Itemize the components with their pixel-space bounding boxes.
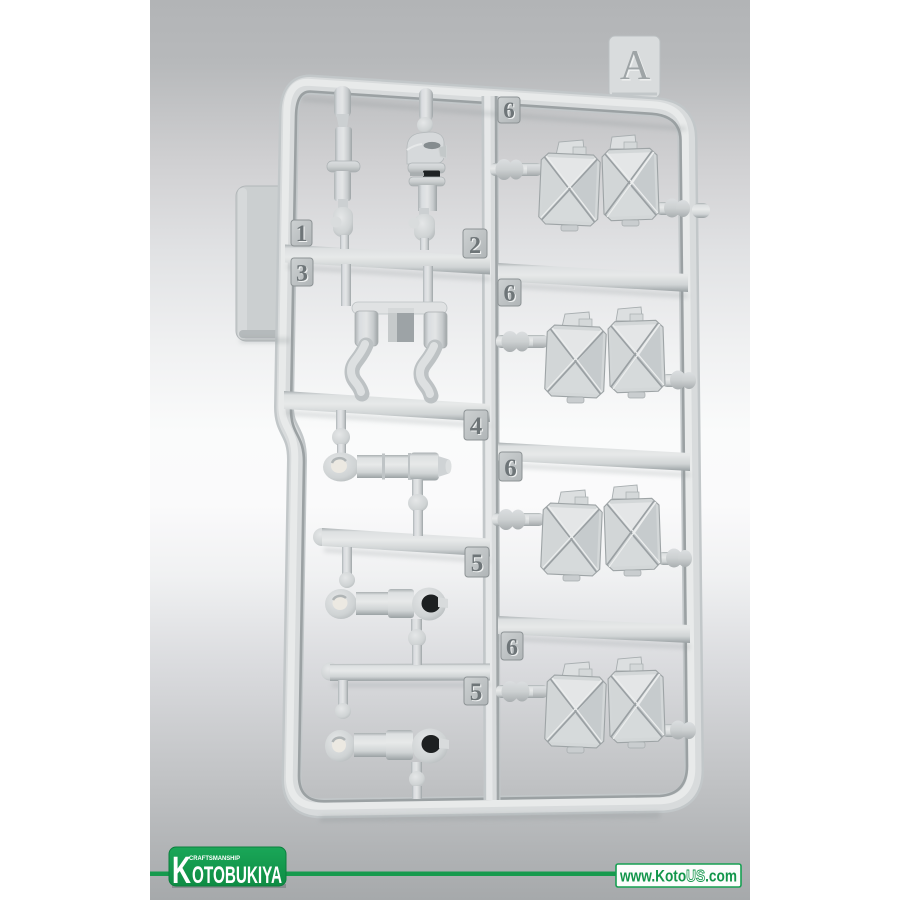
svg-text:3: 3 [296, 261, 308, 287]
svg-text:OTOBUKIYA: OTOBUKIYA [192, 862, 282, 889]
svg-text:6: 6 [506, 635, 518, 661]
svg-text:www.KotoUS.com: www.KotoUS.com [619, 867, 737, 886]
svg-text:6: 6 [504, 455, 517, 482]
svg-text:5: 5 [471, 550, 484, 577]
svg-text:5: 5 [470, 679, 483, 706]
svg-text:A: A [620, 43, 651, 89]
svg-text:6: 6 [504, 281, 516, 307]
svg-text:1: 1 [296, 221, 308, 246]
svg-text:2: 2 [469, 233, 481, 259]
svg-text:4: 4 [470, 413, 483, 440]
svg-text:6: 6 [503, 98, 515, 123]
svg-text:K: K [172, 850, 191, 892]
